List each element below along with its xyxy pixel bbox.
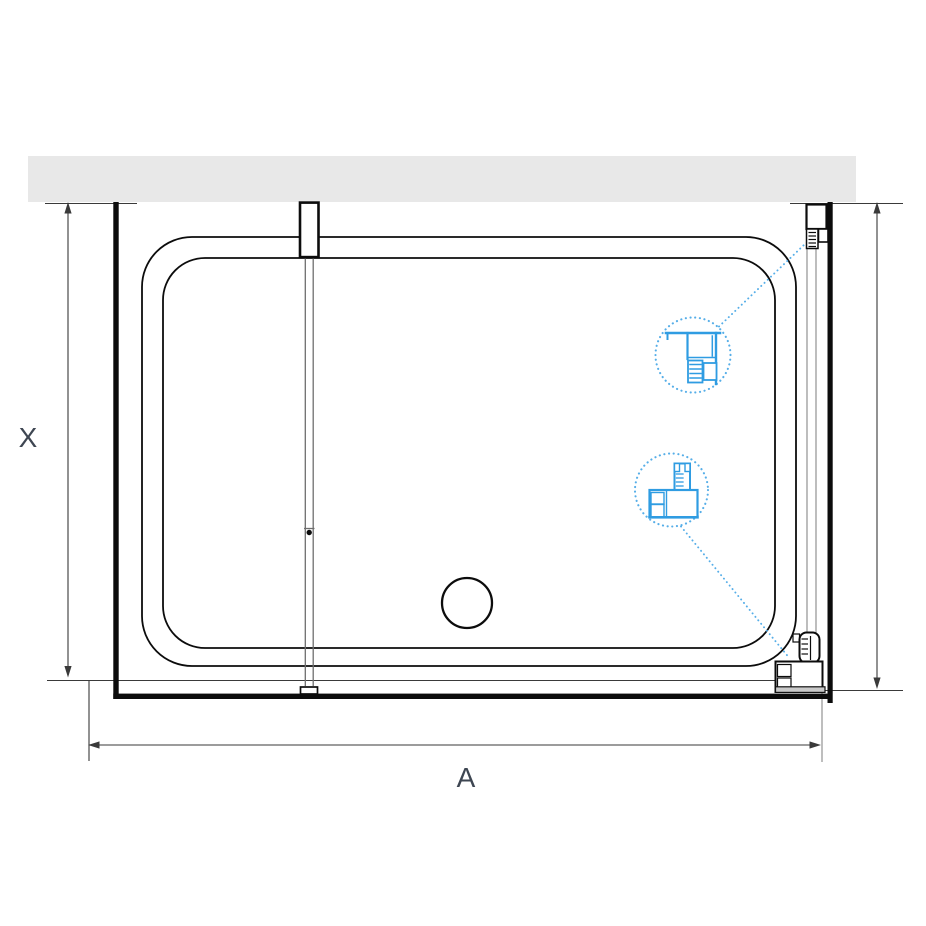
connector-screw-icon (307, 530, 312, 535)
dimension-right (873, 202, 880, 689)
dimension-x-label: X (10, 421, 46, 455)
right-glass-panel (776, 205, 829, 693)
callout-leader (681, 527, 789, 658)
wall-profile-callout (656, 244, 806, 393)
shower-plan-diagram: X A (0, 0, 926, 926)
arrow-down-icon (64, 666, 71, 678)
profile-side-box (819, 229, 829, 242)
wall-profile-hardware (807, 205, 829, 249)
wall-strip (28, 156, 856, 202)
wall-profile-detail-icon (666, 333, 720, 384)
wall-mount-bracket (300, 203, 319, 258)
drain-icon (442, 578, 492, 628)
glass-clamp (800, 633, 820, 664)
panel-foot (301, 687, 318, 694)
floor-bracket-hardware (776, 633, 826, 693)
left-wall-edge (113, 202, 118, 699)
arrow-down-icon (873, 678, 880, 690)
dimension-a-label: A (448, 761, 484, 795)
wall-profile-body (807, 205, 827, 230)
bottom-edge (113, 694, 832, 699)
middle-glass-panel (300, 203, 319, 694)
dimension-x (64, 202, 71, 678)
dimension-a (88, 741, 821, 748)
tray-inner-rim (163, 258, 775, 648)
arrow-right-icon (810, 741, 822, 748)
floor-bracket-callout (635, 454, 789, 658)
callout-leader (719, 244, 806, 327)
tray-outer-rim (142, 237, 796, 666)
bracket-base-plate (776, 687, 826, 693)
floor-bracket-detail-icon (650, 464, 698, 518)
right-panel-edge (828, 202, 833, 703)
shower-tray (142, 237, 796, 666)
arrow-left-icon (88, 741, 100, 748)
